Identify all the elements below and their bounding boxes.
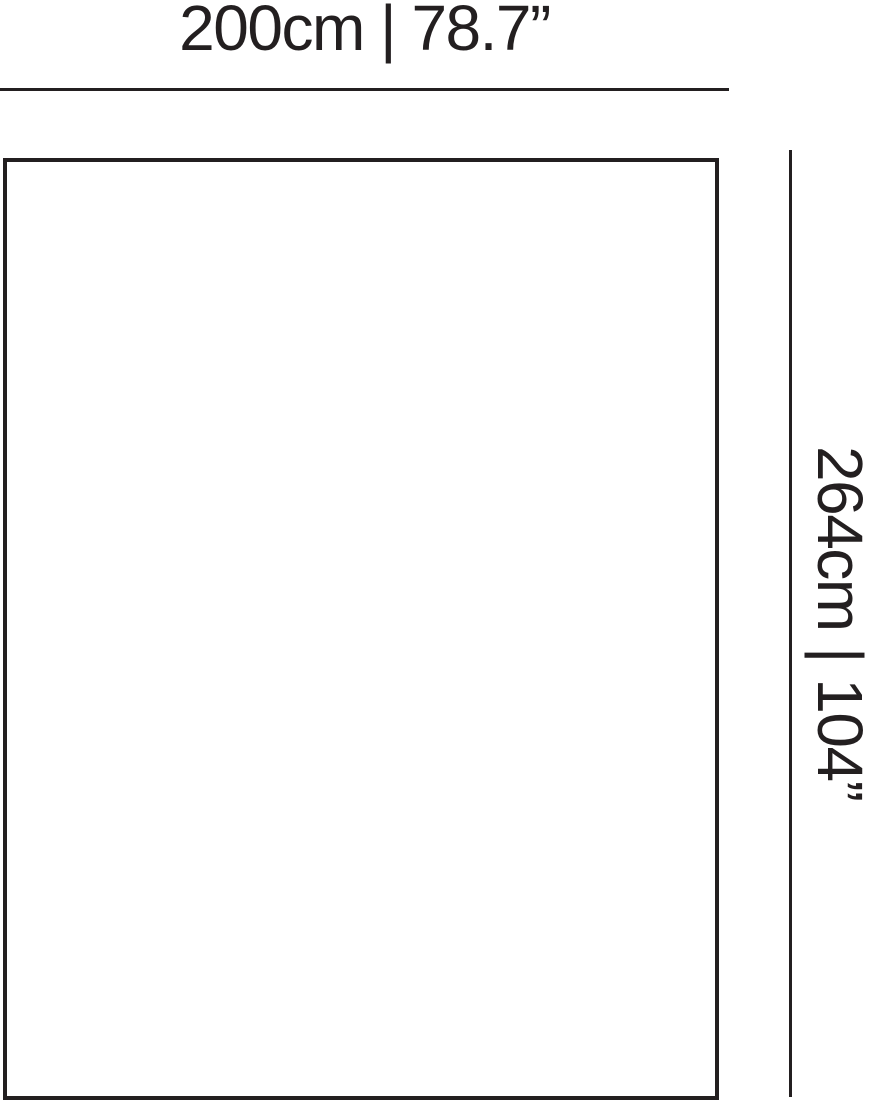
height-dimension-line — [789, 150, 792, 1097]
width-dimension-line — [0, 88, 729, 91]
height-dimension-label: 264cm | 104” — [800, 150, 880, 1097]
width-dimension-label: 200cm | 78.7” — [0, 0, 729, 62]
dimension-diagram: 200cm | 78.7” 264cm | 104” — [0, 0, 880, 1106]
product-outline-rectangle — [3, 158, 719, 1100]
